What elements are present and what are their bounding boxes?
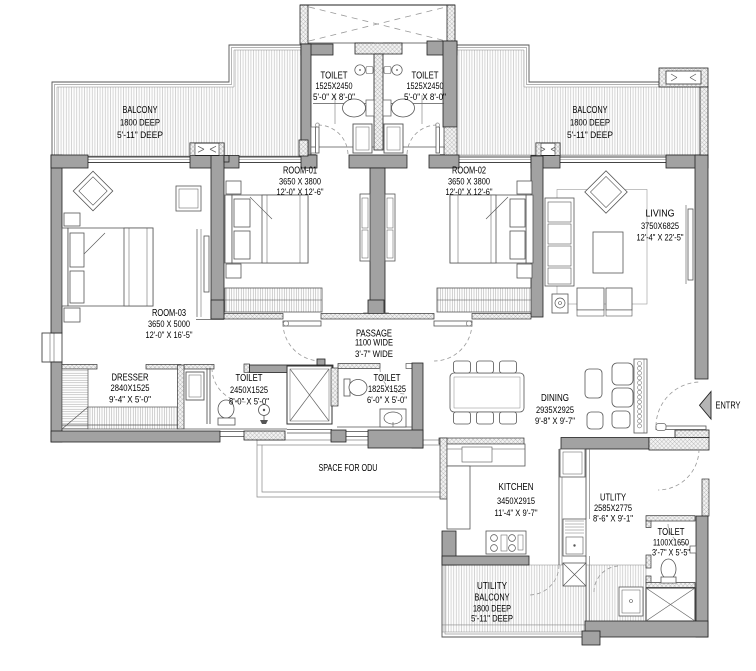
svg-text:1825X1525: 1825X1525	[368, 384, 406, 395]
svg-text:BALCONY: BALCONY	[573, 105, 608, 116]
svg-text:12'-0" X 12'-6": 12'-0" X 12'-6"	[446, 187, 493, 198]
svg-text:TOILET: TOILET	[321, 71, 348, 82]
svg-text:KITCHEN: KITCHEN	[499, 482, 534, 493]
svg-text:UTILITY: UTILITY	[477, 581, 507, 592]
svg-text:1100 WIDE: 1100 WIDE	[355, 338, 393, 349]
svg-text:1525X2450: 1525X2450	[407, 81, 444, 92]
svg-text:1800 DEEP: 1800 DEEP	[570, 118, 610, 129]
svg-text:SPACE FOR ODU: SPACE FOR ODU	[319, 463, 378, 474]
svg-text:TOILET: TOILET	[236, 373, 263, 384]
svg-text:2450X1525: 2450X1525	[230, 385, 268, 396]
svg-text:3750X6825: 3750X6825	[641, 221, 679, 232]
svg-text:DINING: DINING	[541, 393, 569, 404]
svg-text:UTLITY: UTLITY	[600, 493, 626, 504]
svg-text:5'-0" X 8'-0": 5'-0" X 8'-0"	[313, 92, 355, 103]
svg-text:2585X2775: 2585X2775	[594, 503, 632, 514]
svg-text:9'-4" X 5'-0": 9'-4" X 5'-0"	[109, 395, 151, 406]
svg-text:3'-7" WIDE: 3'-7" WIDE	[355, 349, 393, 360]
svg-text:2935X2925: 2935X2925	[536, 405, 574, 416]
svg-text:1800 DEEP: 1800 DEEP	[120, 118, 160, 129]
svg-text:ROOM-02: ROOM-02	[452, 166, 486, 177]
svg-text:1525X2450: 1525X2450	[316, 81, 353, 92]
svg-text:9'-8" X 9'-7": 9'-8" X 9'-7"	[535, 416, 575, 427]
svg-text:DRESSER: DRESSER	[112, 373, 149, 384]
svg-text:11'-4" X 9'-7": 11'-4" X 9'-7"	[495, 508, 538, 519]
svg-text:5'-11" DEEP: 5'-11" DEEP	[567, 130, 613, 141]
svg-text:3650 X 3800: 3650 X 3800	[448, 177, 490, 188]
svg-text:12'-4" X 22'-5": 12'-4" X 22'-5"	[637, 233, 684, 244]
svg-text:3450X2915: 3450X2915	[497, 496, 535, 507]
svg-text:TOILET: TOILET	[374, 373, 401, 384]
svg-text:1100X1650: 1100X1650	[653, 538, 689, 548]
svg-text:3'-7" X 5'-5": 3'-7" X 5'-5"	[652, 548, 690, 558]
svg-text:ROOM-03: ROOM-03	[152, 308, 186, 319]
svg-text:8'-0" X 5'-0": 8'-0" X 5'-0"	[229, 397, 269, 408]
svg-text:BALCONY: BALCONY	[475, 593, 510, 604]
svg-text:LIVING: LIVING	[646, 209, 675, 220]
svg-text:ROOM-01: ROOM-01	[283, 166, 317, 177]
svg-text:12'-0" X 16'-5": 12'-0" X 16'-5"	[146, 330, 193, 341]
svg-text:6'-0" X 5'-0": 6'-0" X 5'-0"	[367, 395, 407, 406]
svg-text:BALCONY: BALCONY	[123, 105, 158, 116]
svg-text:12'-0" X 12'-6": 12'-0" X 12'-6"	[277, 187, 324, 198]
svg-text:3650 X 5000: 3650 X 5000	[148, 319, 190, 330]
svg-text:TOILET: TOILET	[658, 527, 685, 538]
svg-text:5'-0" X 8'-0": 5'-0" X 8'-0"	[404, 92, 446, 103]
svg-text:8'-6" X 9'-1": 8'-6" X 9'-1"	[593, 514, 633, 525]
svg-text:5'-11" DEEP: 5'-11" DEEP	[117, 130, 163, 141]
svg-text:2840X1525: 2840X1525	[111, 383, 150, 394]
svg-text:5'-11" DEEP: 5'-11" DEEP	[471, 614, 513, 625]
svg-text:TOILET: TOILET	[412, 71, 439, 82]
svg-text:ENTRY: ENTRY	[716, 401, 741, 412]
svg-text:3650 X 3800: 3650 X 3800	[279, 177, 321, 188]
